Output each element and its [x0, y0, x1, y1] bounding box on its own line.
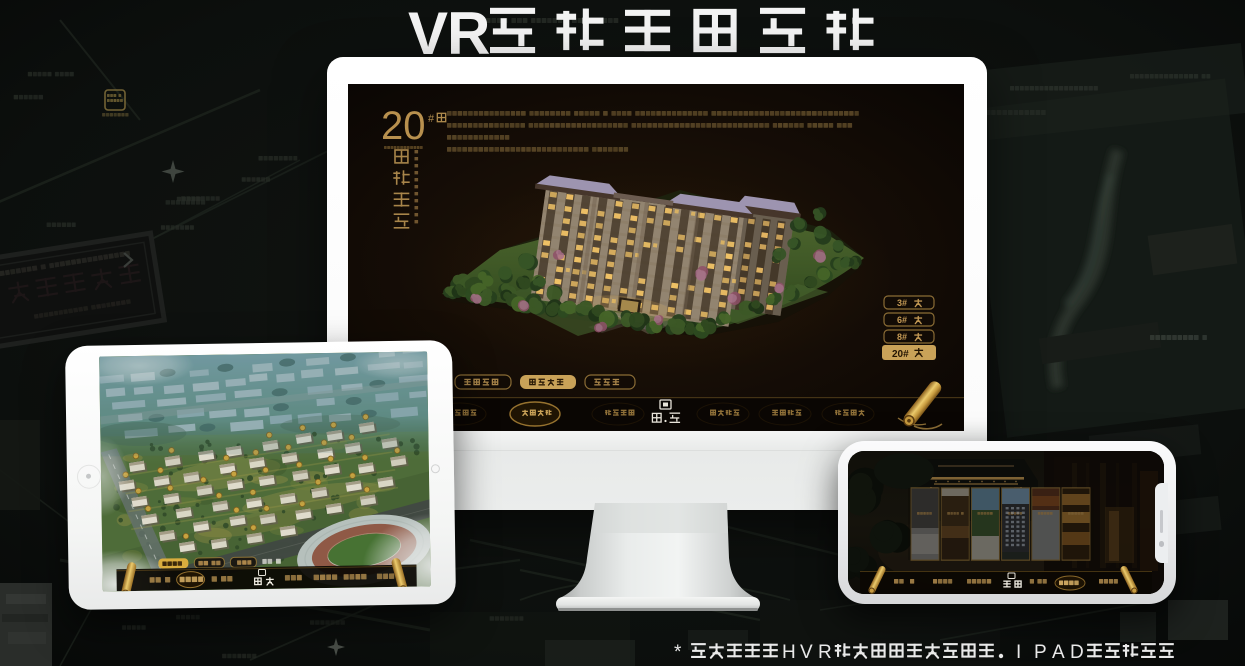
svg-text:VR: VR — [408, 5, 490, 61]
svg-text:20#: 20# — [892, 349, 909, 360]
svg-text:R: R — [818, 642, 832, 663]
svg-text:H: H — [782, 642, 796, 663]
svg-text:A: A — [1052, 642, 1065, 663]
svg-text:V: V — [800, 642, 813, 663]
svg-text:3#: 3# — [897, 298, 907, 308]
svg-text:*: * — [674, 642, 682, 663]
svg-text:P: P — [1034, 642, 1047, 663]
svg-text:D: D — [1070, 642, 1084, 663]
svg-text:6#: 6# — [897, 315, 907, 325]
svg-text:20: 20 — [381, 104, 426, 148]
svg-text:#: # — [428, 113, 435, 125]
svg-text:8#: 8# — [897, 332, 907, 342]
svg-text:I: I — [1016, 642, 1021, 663]
